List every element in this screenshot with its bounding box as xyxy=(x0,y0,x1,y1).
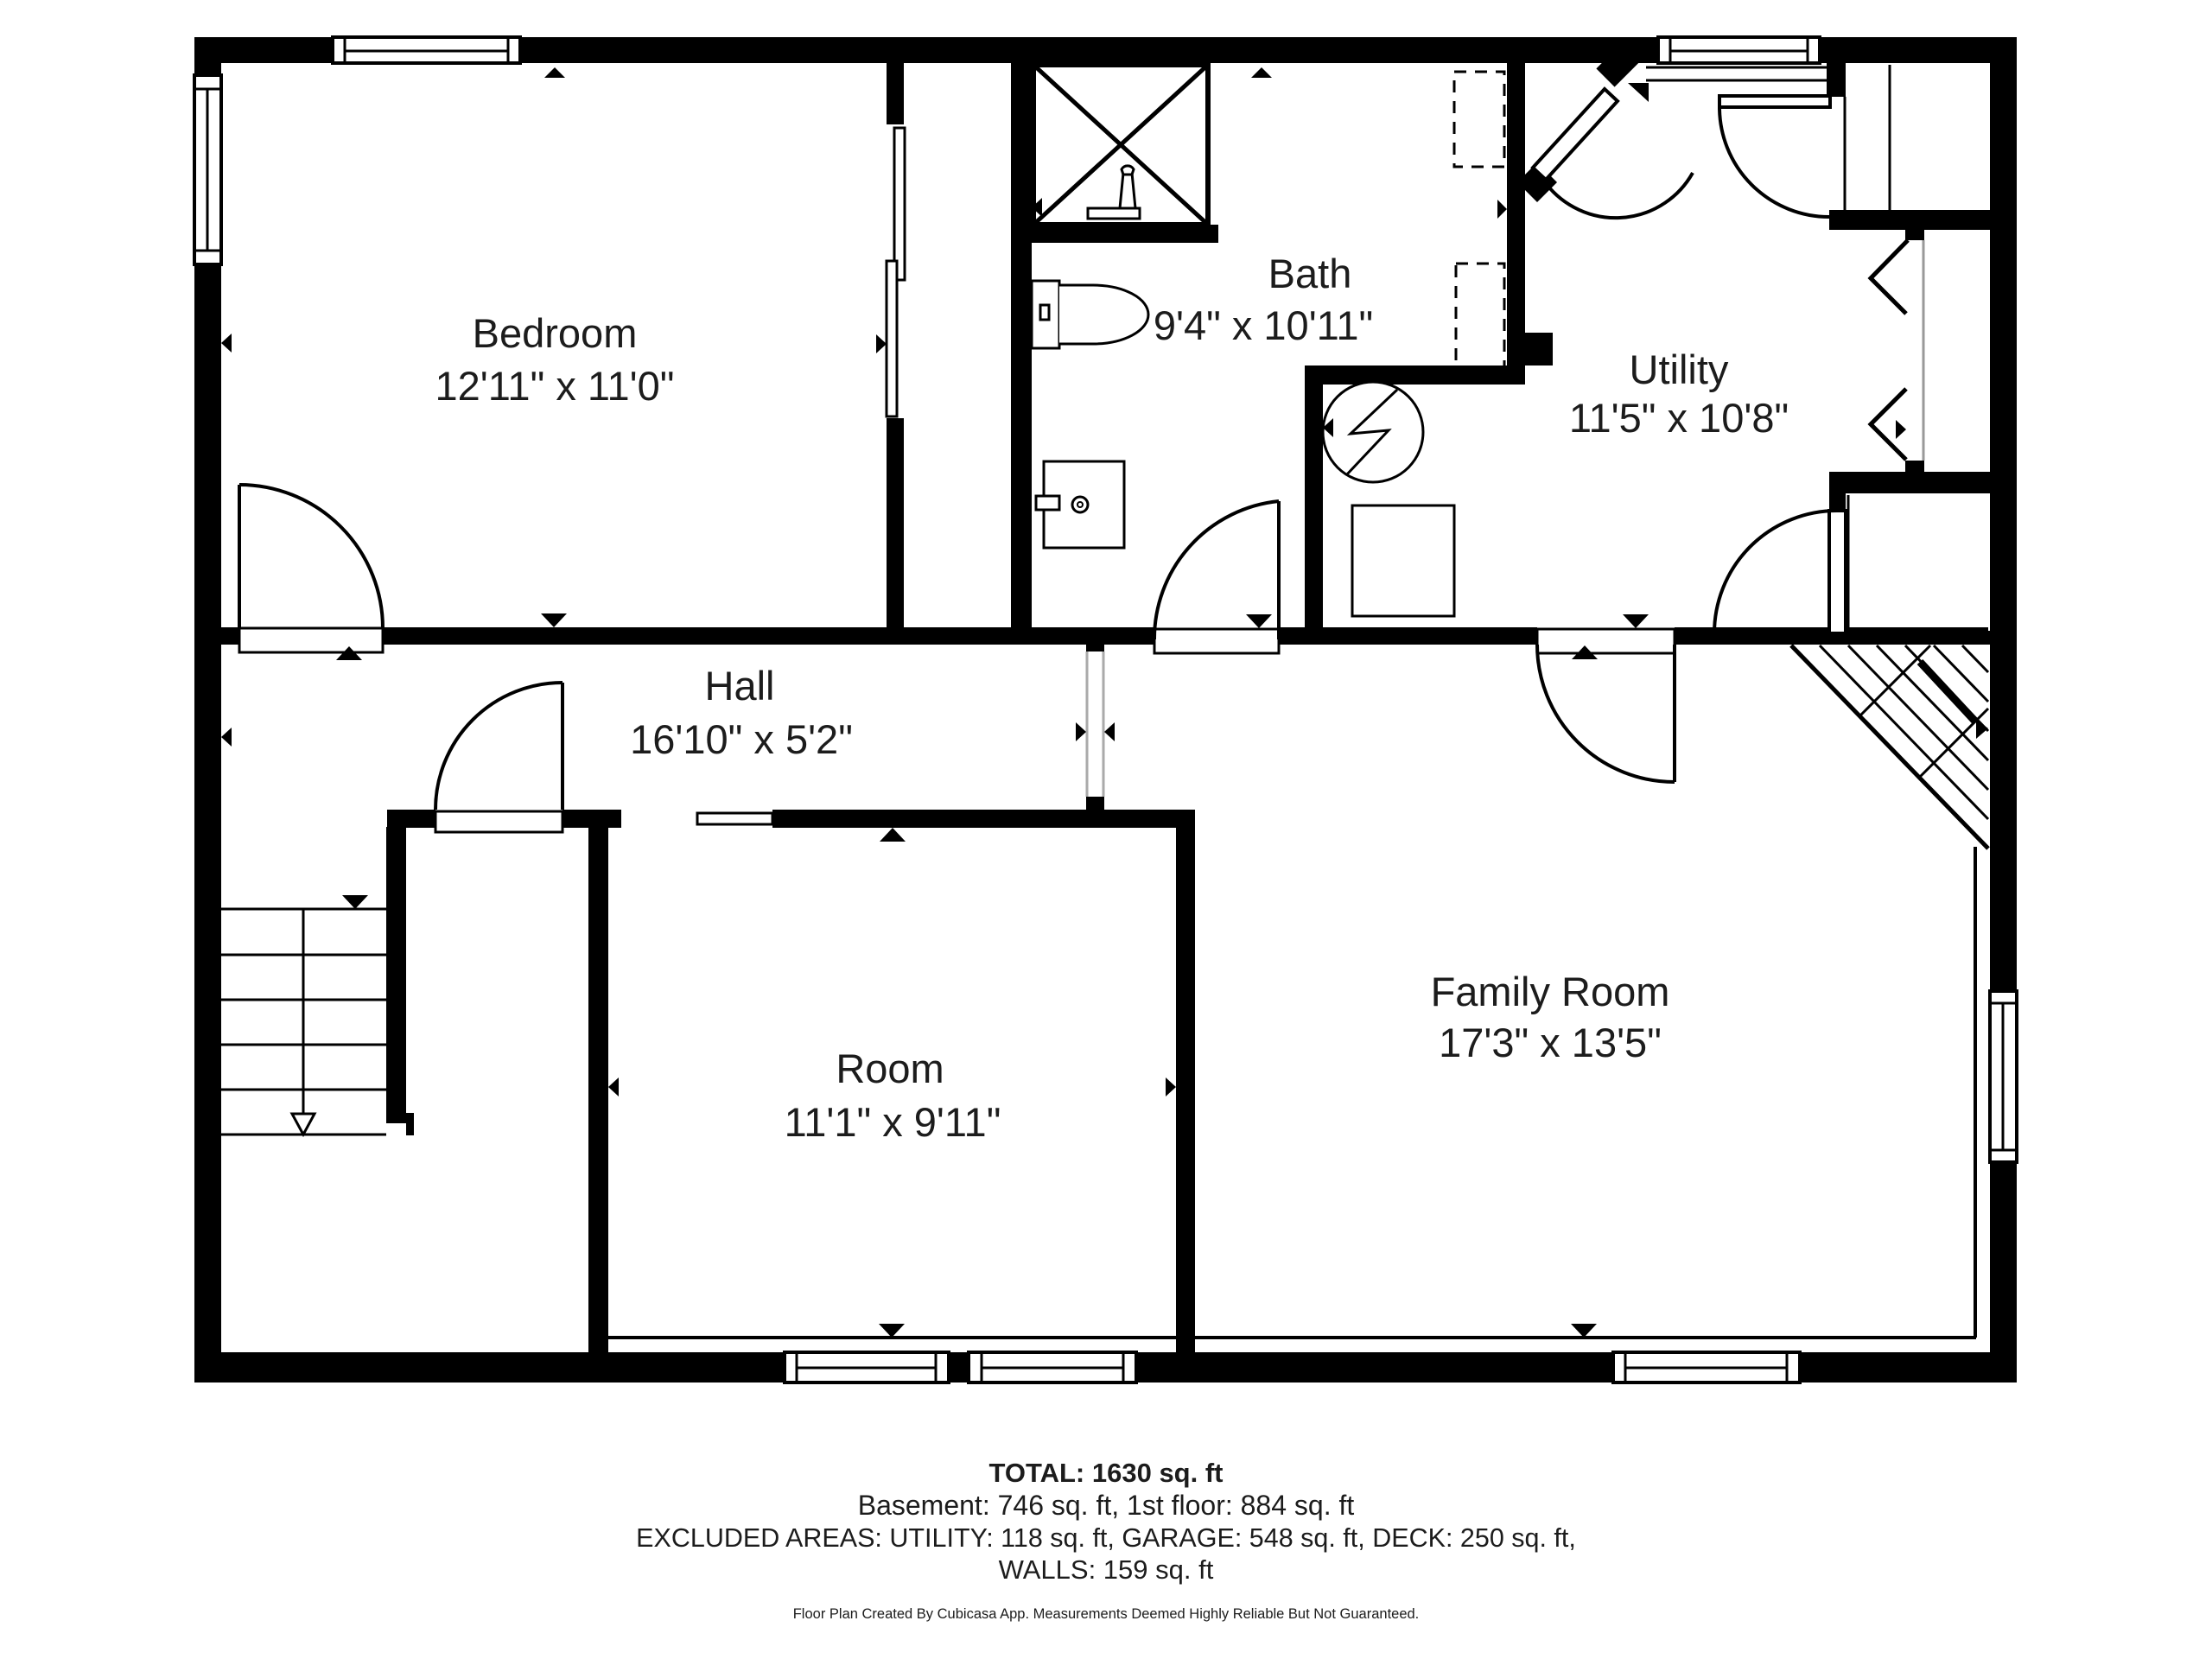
svg-text:16'10" x 5'2": 16'10" x 5'2" xyxy=(630,716,853,762)
svg-text:11'5" x 10'8": 11'5" x 10'8" xyxy=(1569,395,1789,441)
svg-text:Utility: Utility xyxy=(1630,346,1729,392)
svg-text:17'3" x 13'5": 17'3" x 13'5" xyxy=(1439,1020,1662,1065)
svg-text:12'11" x 11'0": 12'11" x 11'0" xyxy=(435,363,675,409)
svg-text:Room: Room xyxy=(836,1046,944,1091)
svg-text:Bath: Bath xyxy=(1268,251,1352,296)
svg-text:Basement: 746 sq. ft, 1st floo: Basement: 746 sq. ft, 1st floor: 884 sq.… xyxy=(858,1490,1355,1521)
svg-text:Hall: Hall xyxy=(705,663,775,709)
svg-text:WALLS: 159 sq. ft: WALLS: 159 sq. ft xyxy=(999,1554,1214,1585)
svg-text:Bedroom: Bedroom xyxy=(473,310,638,356)
svg-text:11'1" x 9'11": 11'1" x 9'11" xyxy=(785,1099,1001,1145)
svg-text:EXCLUDED AREAS: UTILITY: 118 s: EXCLUDED AREAS: UTILITY: 118 sq. ft, GAR… xyxy=(636,1523,1576,1553)
svg-text:Family Room: Family Room xyxy=(1431,969,1670,1014)
svg-text:9'4" x 10'11": 9'4" x 10'11" xyxy=(1154,302,1373,348)
svg-text:Floor Plan Created By Cubicasa: Floor Plan Created By Cubicasa App. Meas… xyxy=(793,1606,1420,1622)
svg-text:TOTAL: 1630 sq. ft: TOTAL: 1630 sq. ft xyxy=(988,1458,1223,1488)
